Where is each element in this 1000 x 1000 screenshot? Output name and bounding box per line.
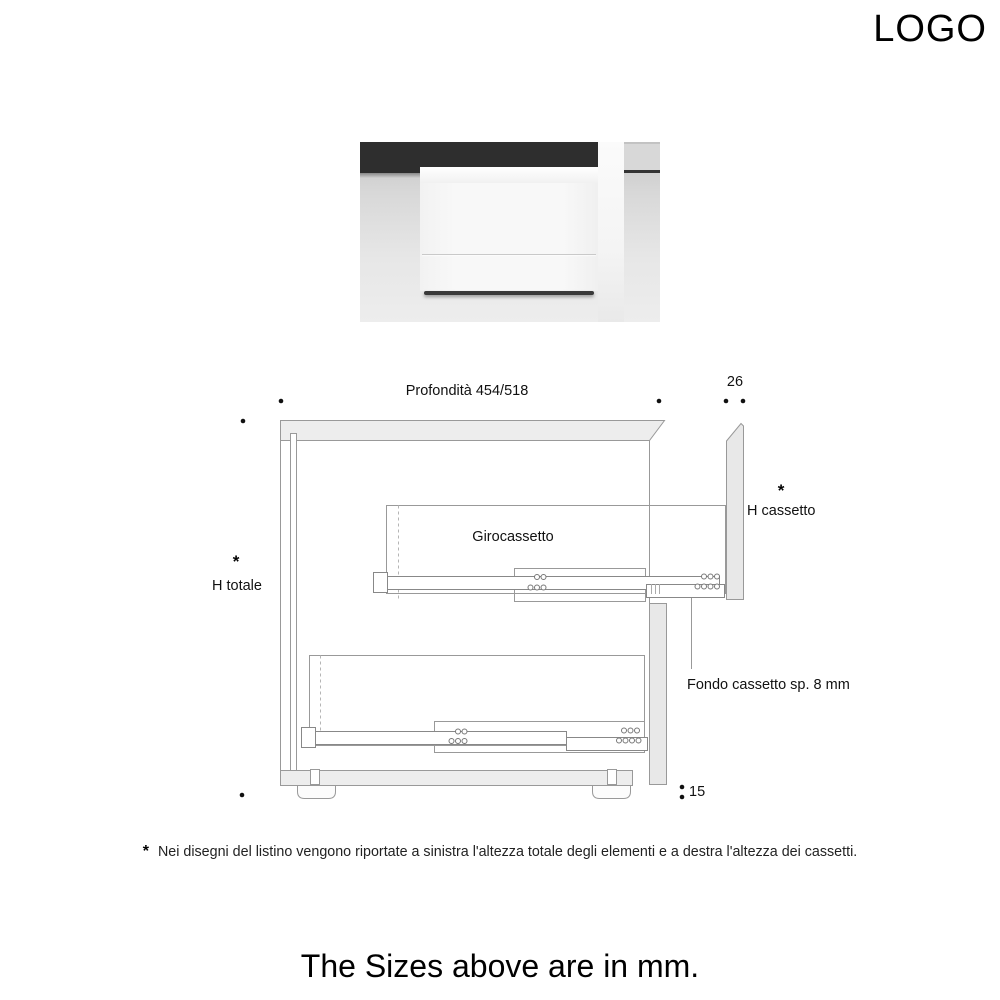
drawer-bottom-label: Fondo cassetto sp. 8 mm [687, 677, 850, 693]
cabinet-left-side [281, 434, 297, 771]
spec-sheet-page: LOGO [0, 0, 1000, 1000]
cabinet-feet [298, 786, 631, 799]
drawer-height-label: H cassetto [747, 503, 816, 519]
drawer-box-label: Girocassetto [433, 529, 593, 545]
footnote: * Nei disegni del listino vengono riport… [0, 843, 1000, 862]
dim-foot-height-label: 15 [689, 784, 705, 800]
lower-drawer-slide-rails [302, 728, 648, 751]
footnote-text: Nei disegni del listino vengono riportat… [158, 843, 857, 862]
cabinet-top-panel [281, 421, 665, 441]
total-height-asterisk: * [227, 552, 245, 572]
cabinet-bottom-panel [281, 770, 633, 786]
drawer-height-asterisk: * [772, 481, 790, 501]
footnote-asterisk: * [143, 843, 149, 861]
dim-front-thickness-label: 26 [720, 374, 750, 390]
upper-drawer-front-panel [727, 424, 744, 600]
lower-drawer-front-panel [650, 604, 667, 785]
dim-depth-label: Profondità 454/518 [357, 383, 577, 399]
total-height-label: H totale [195, 578, 279, 594]
units-note: The Sizes above are in mm. [0, 948, 1000, 985]
